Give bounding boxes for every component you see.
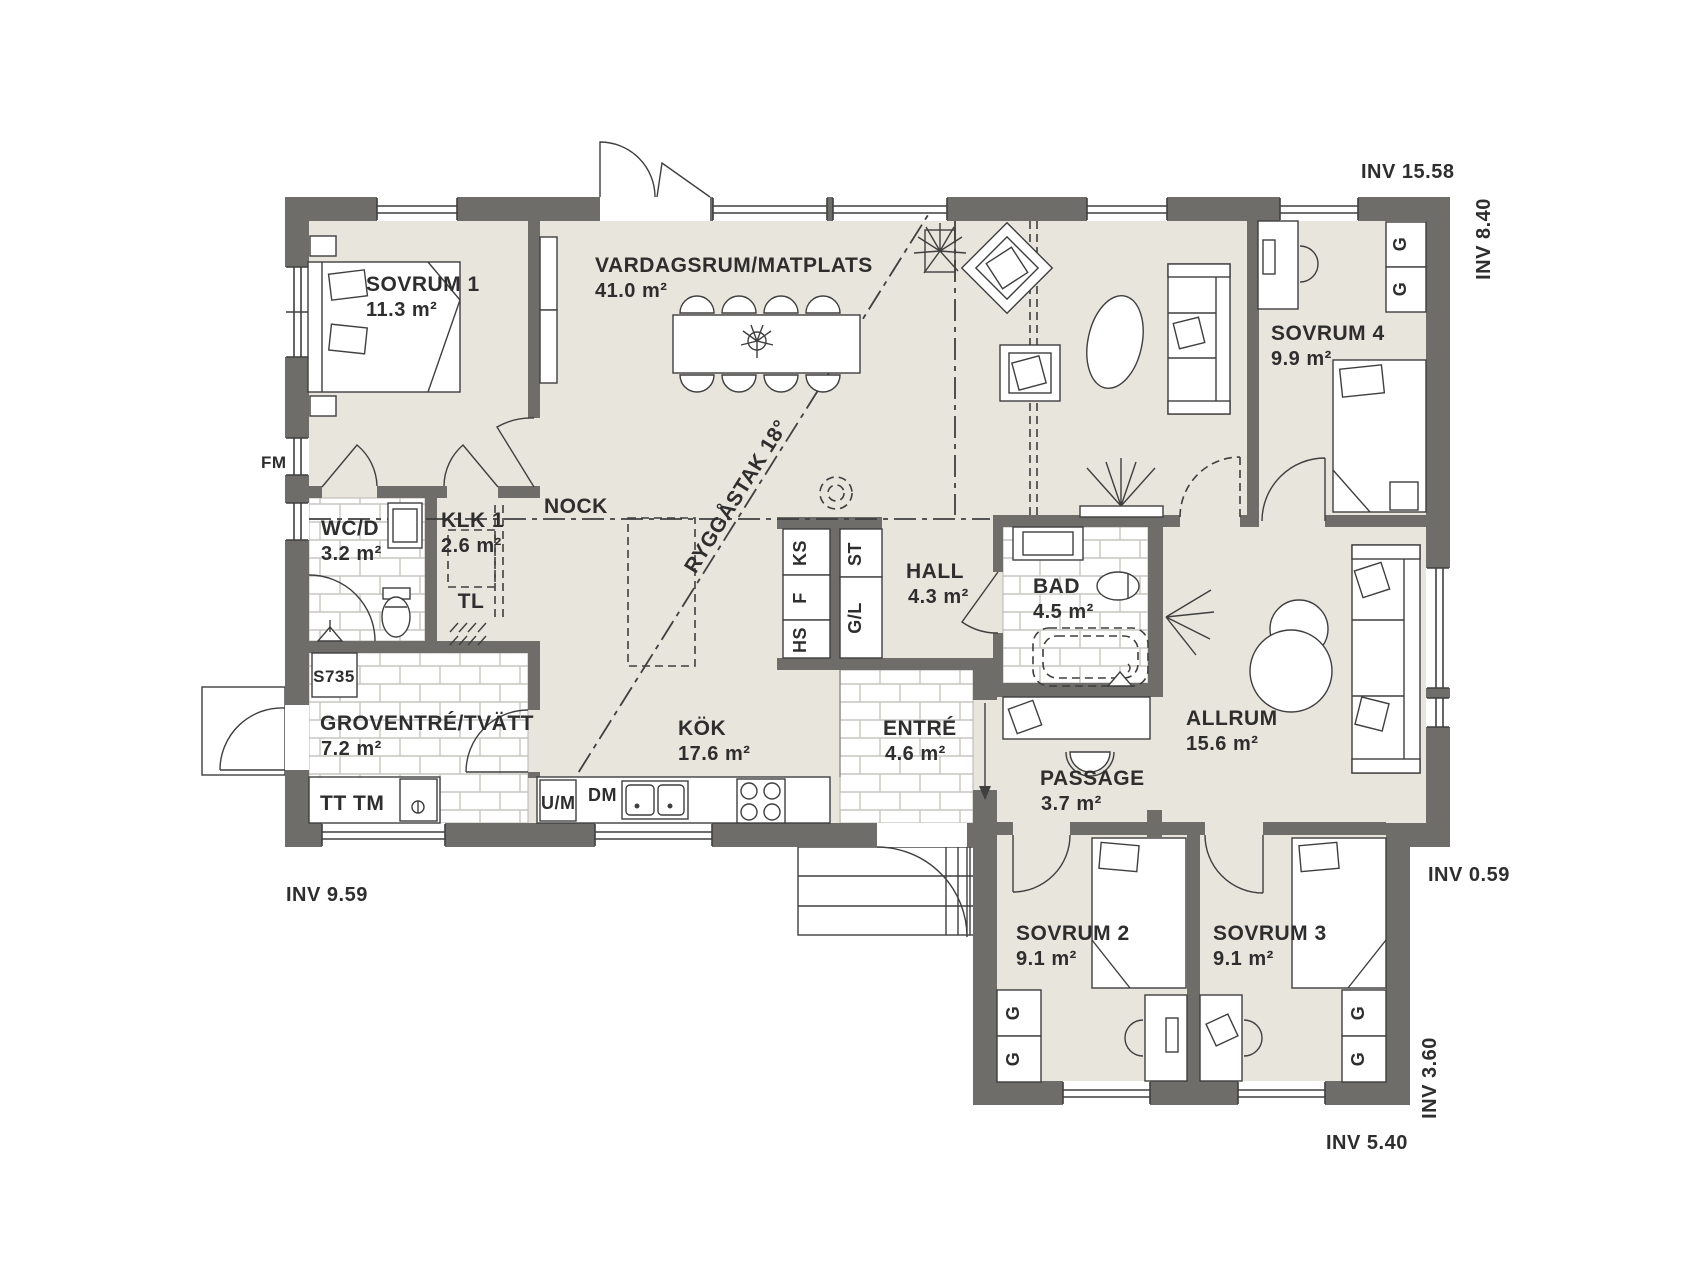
washer-dryer-label: TT TM xyxy=(320,792,384,815)
window-vardagsrum-top-3 xyxy=(1087,197,1167,221)
entrance-deck xyxy=(798,847,978,935)
room-area: 9.1 m² xyxy=(1213,948,1274,970)
window-code-label: FM xyxy=(261,453,287,472)
wardrobe-linen-label: G/L xyxy=(845,602,865,634)
wardrobe-label: G xyxy=(1348,1006,1368,1021)
wall-wing-left xyxy=(973,847,997,1081)
room-name: KÖK xyxy=(678,717,726,740)
cleaning-cabinet-label: ST xyxy=(845,542,865,566)
room-name: ENTRÉ xyxy=(883,717,957,740)
sink-icon xyxy=(622,781,688,819)
window-vardagsrum-top-1 xyxy=(713,197,827,221)
armchair-icon xyxy=(1000,345,1060,401)
shelf-icon xyxy=(540,237,557,310)
dishwasher-label: DM xyxy=(588,785,617,805)
vent-duct xyxy=(1147,810,1162,837)
window-sovrum3-bottom xyxy=(1238,1081,1325,1105)
washbasin-icon xyxy=(1013,527,1083,560)
sofa-icon xyxy=(1168,264,1230,414)
pouf-icon xyxy=(1250,630,1332,712)
dimension-bottom-right: INV 5.40 xyxy=(1326,1132,1408,1154)
bed-icon xyxy=(1333,360,1426,512)
wall-wing-top-a xyxy=(997,822,1013,835)
room-area: 4.6 m² xyxy=(885,743,946,765)
window-fm-left xyxy=(285,438,309,475)
wall-bad-right xyxy=(1148,515,1163,697)
stove-icon xyxy=(737,779,785,823)
room-name: GROVENTRÉ/TVÄTT xyxy=(320,712,534,735)
room-area: 17.6 m² xyxy=(678,743,750,765)
wardrobe-label: G xyxy=(1348,1052,1368,1067)
nightstand-icon xyxy=(310,236,336,256)
window-sovrum2-bottom xyxy=(1063,1081,1150,1105)
window-wcd-left xyxy=(285,503,309,540)
washing-machine-icon xyxy=(400,779,437,821)
toilet-icon xyxy=(382,588,410,637)
shelf-icon xyxy=(540,310,557,383)
attic-hatch-label: TL xyxy=(458,590,485,613)
wall-hall-bottom xyxy=(882,658,993,670)
sofa-icon xyxy=(1352,545,1420,773)
room-name: SOVRUM 4 xyxy=(1271,322,1385,345)
wall-entre-passage-a xyxy=(973,670,997,700)
toilet-icon xyxy=(1097,572,1139,600)
wall-exterior-step xyxy=(1386,823,1450,847)
window-sovrum1-top xyxy=(377,197,457,221)
wall-sovrum1-right xyxy=(528,221,540,418)
floor-plan-drawing: SOVRUM 1 11.3 m² VARDAGSRUM/MATPLATS 41.… xyxy=(0,0,1707,1280)
fridge-label: KS xyxy=(790,540,810,566)
wall-hall-bad-a xyxy=(993,515,1003,572)
window-allrum-right-1 xyxy=(1426,568,1450,688)
room-name: PASSAGE xyxy=(1040,767,1145,790)
door-code-label: S735 xyxy=(313,667,355,686)
room-area: 4.3 m² xyxy=(908,586,969,608)
room-area: 11.3 m² xyxy=(366,299,437,321)
room-area: 3.2 m² xyxy=(321,543,382,565)
room-name: HALL xyxy=(906,560,964,583)
wall-wing-top-c xyxy=(1263,822,1386,835)
floor-plan-canvas: SOVRUM 1 11.3 m² VARDAGSRUM/MATPLATS 41.… xyxy=(0,0,1707,1280)
wall-sovrum4-left xyxy=(1247,221,1259,527)
window-allrum-right-2 xyxy=(1426,698,1450,727)
wall-opening-stub-right xyxy=(1240,515,1247,527)
wall-wing-right xyxy=(1386,847,1410,1081)
window-vardagsrum-top-2 xyxy=(833,197,947,221)
wall-cabinet-bottom xyxy=(777,658,882,670)
room-name: KLK 1 xyxy=(441,509,504,532)
wardrobe-label: G xyxy=(1003,1006,1023,1021)
wall-wcd-top-b xyxy=(377,486,447,498)
room-name: VARDAGSRUM/MATPLATS xyxy=(595,254,873,277)
room-name: BAD xyxy=(1033,575,1080,598)
room-area: 9.9 m² xyxy=(1271,348,1332,370)
washbasin-icon xyxy=(388,503,422,548)
room-name: ALLRUM xyxy=(1186,707,1278,730)
wall-exterior-right xyxy=(1426,221,1450,823)
tall-cabinet-label: HS xyxy=(790,627,810,653)
room-name: SOVRUM 1 xyxy=(366,273,480,296)
room-area: 2.6 m² xyxy=(441,535,502,557)
ridge-label: NOCK xyxy=(544,495,608,518)
nightstand-icon xyxy=(310,396,336,416)
bed-icon xyxy=(1092,838,1186,988)
room-area: 3.7 m² xyxy=(1041,793,1102,815)
room-area: 4.5 m² xyxy=(1033,601,1094,623)
dimension-right-upper: INV 8.40 xyxy=(1473,198,1495,280)
wall-wing-top-b xyxy=(1070,822,1205,835)
oven-micro-label: U/M xyxy=(541,793,576,813)
room-area: 9.1 m² xyxy=(1016,948,1077,970)
window-kok-bottom xyxy=(595,823,712,847)
dimension-top-right: INV 15.58 xyxy=(1361,161,1454,183)
window-sovrum1-left xyxy=(285,267,309,357)
window-sovrum4-top xyxy=(1280,197,1358,221)
dimension-bottom-left: INV 9.59 xyxy=(286,884,368,906)
wall-bad-bottom xyxy=(993,683,1163,697)
wall-opening-stub-left xyxy=(1163,515,1180,527)
wall-wcd-bottom xyxy=(309,641,540,653)
room-name: SOVRUM 2 xyxy=(1016,922,1130,945)
side-entrance-canopy xyxy=(202,687,285,775)
dimension-right-lower: INV 3.60 xyxy=(1419,1037,1441,1119)
bed-icon xyxy=(1292,838,1386,988)
wardrobe-label: G xyxy=(1003,1052,1023,1067)
wall-sovrum4-bottom xyxy=(1325,515,1426,527)
kitchen-fixtures xyxy=(537,777,830,823)
room-name: WC/D xyxy=(321,517,379,540)
dimension-right-step: INV 0.59 xyxy=(1428,864,1510,886)
room-area: 15.6 m² xyxy=(1186,733,1258,755)
wardrobe-label: G xyxy=(1390,282,1410,297)
wall-wcd-top-a xyxy=(309,486,322,498)
wall-cabinet-divider xyxy=(830,529,840,658)
wall-klk-top xyxy=(498,486,540,498)
wall-wing-bottom xyxy=(973,1081,1410,1105)
wall-groventre-right-a xyxy=(528,653,540,710)
terrace-double-door xyxy=(600,142,710,221)
room-area: 7.2 m² xyxy=(321,738,382,760)
dining-set xyxy=(673,296,860,392)
wardrobe-label: G xyxy=(1390,237,1410,252)
freezer-label: F xyxy=(790,592,810,604)
room-area: 41.0 m² xyxy=(595,280,667,302)
room-name: SOVRUM 3 xyxy=(1213,922,1327,945)
window-groventre-bottom xyxy=(322,823,445,847)
wall-sovrum2-3-divider xyxy=(1187,835,1200,1081)
